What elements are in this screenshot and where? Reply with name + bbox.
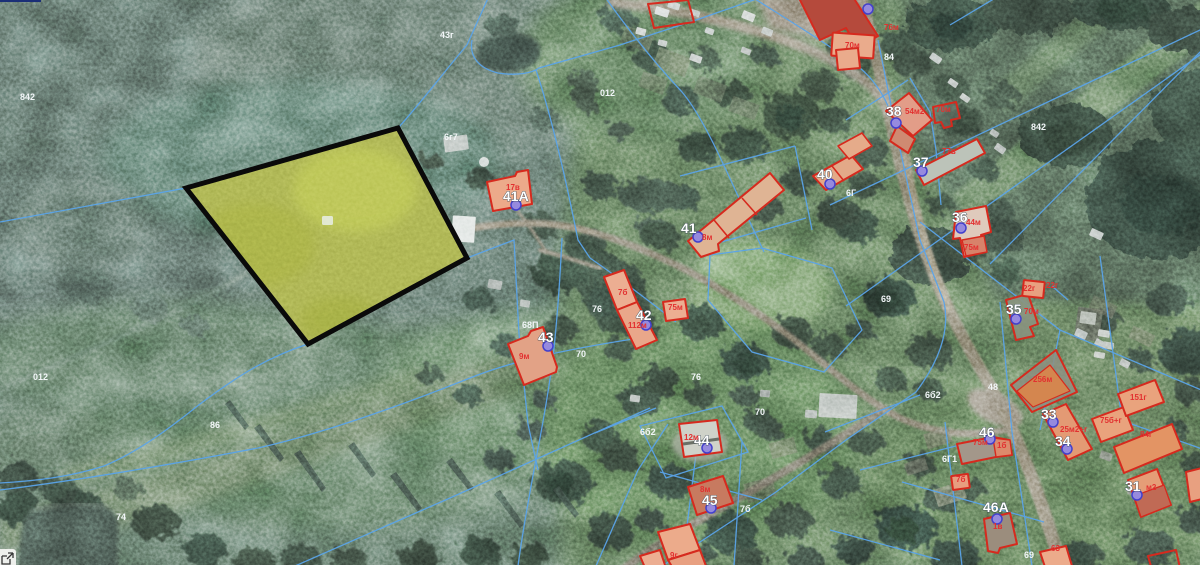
svg-text:25м2+г: 25м2+г xyxy=(1060,425,1088,434)
svg-text:70м: 70м xyxy=(1024,307,1039,316)
svg-text:40: 40 xyxy=(817,166,833,182)
svg-text:22г: 22г xyxy=(1046,281,1059,290)
svg-text:76: 76 xyxy=(691,372,701,382)
svg-text:70: 70 xyxy=(576,349,586,359)
svg-text:63: 63 xyxy=(1051,544,1060,553)
svg-text:842: 842 xyxy=(1031,122,1046,132)
svg-text:70м: 70м xyxy=(845,41,860,50)
svg-text:48: 48 xyxy=(988,382,998,392)
svg-text:38: 38 xyxy=(886,103,902,119)
svg-text:75м: 75м xyxy=(668,303,683,312)
svg-text:256м: 256м xyxy=(1033,375,1052,384)
svg-text:6Г1: 6Г1 xyxy=(942,454,957,464)
svg-text:77в: 77в xyxy=(942,147,956,156)
svg-text:6Г: 6Г xyxy=(846,188,856,198)
svg-text:9м: 9м xyxy=(519,352,529,361)
svg-text:842: 842 xyxy=(20,92,35,102)
svg-text:69: 69 xyxy=(881,294,891,304)
svg-text:1в: 1в xyxy=(993,522,1002,531)
svg-text:84г: 84г xyxy=(1140,430,1153,439)
svg-text:8м: 8м xyxy=(702,233,712,242)
svg-text:151г: 151г xyxy=(1130,393,1147,402)
svg-text:84: 84 xyxy=(884,52,894,62)
svg-text:9г: 9г xyxy=(670,551,678,560)
svg-text:22г: 22г xyxy=(1023,284,1036,293)
svg-text:76м: 76м xyxy=(884,23,899,32)
svg-text:012: 012 xyxy=(600,88,615,98)
svg-text:6б2: 6б2 xyxy=(640,427,656,437)
svg-text:1б: 1б xyxy=(997,441,1006,450)
svg-text:31: 31 xyxy=(1125,478,1141,494)
svg-text:54м2: 54м2 xyxy=(905,107,925,116)
svg-text:41: 41 xyxy=(681,220,697,236)
svg-text:68П: 68П xyxy=(522,320,538,330)
svg-text:76: 76 xyxy=(592,304,602,314)
svg-text:012: 012 xyxy=(33,372,48,382)
svg-text:44м: 44м xyxy=(966,218,981,227)
svg-text:70: 70 xyxy=(755,407,765,417)
svg-text:46A: 46A xyxy=(983,499,1009,515)
svg-text:12м: 12м xyxy=(684,433,699,442)
svg-text:37: 37 xyxy=(913,154,929,170)
svg-text:112м: 112м xyxy=(628,321,647,330)
svg-text:33: 33 xyxy=(1041,406,1057,422)
svg-text:45: 45 xyxy=(702,492,718,508)
svg-text:8м: 8м xyxy=(700,485,710,494)
svg-text:35: 35 xyxy=(1006,301,1022,317)
svg-text:75м: 75м xyxy=(973,438,988,447)
svg-text:69: 69 xyxy=(1024,550,1034,560)
svg-text:17в: 17в xyxy=(506,183,520,192)
svg-text:43: 43 xyxy=(538,329,554,345)
svg-text:6г7: 6г7 xyxy=(444,132,458,142)
svg-text:34: 34 xyxy=(1055,433,1071,449)
svg-text:7б: 7б xyxy=(618,288,627,297)
svg-text:74: 74 xyxy=(116,512,126,522)
svg-text:6б2: 6б2 xyxy=(925,390,941,400)
svg-text:75м: 75м xyxy=(964,243,979,252)
svg-text:7б: 7б xyxy=(956,475,965,484)
svg-text:70м: 70м xyxy=(936,105,951,114)
svg-text:75б+г: 75б+г xyxy=(1100,416,1123,425)
svg-text:7б: 7б xyxy=(740,504,751,514)
svg-text:43г: 43г xyxy=(440,30,454,40)
svg-text:86: 86 xyxy=(210,420,220,430)
svg-text:м2: м2 xyxy=(1146,483,1157,492)
